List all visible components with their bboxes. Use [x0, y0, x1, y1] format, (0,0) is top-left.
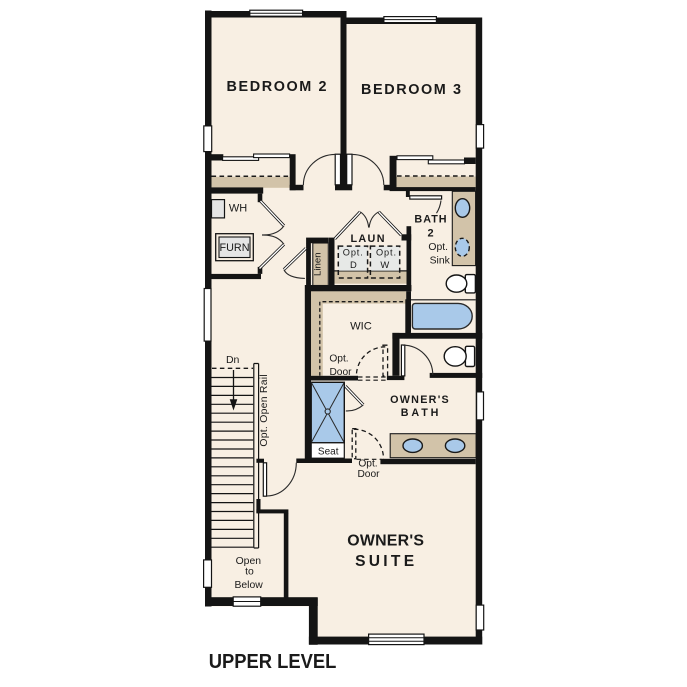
svg-text:Opt.: Opt. [343, 247, 363, 257]
svg-text:Door: Door [329, 367, 352, 378]
svg-text:to: to [245, 567, 254, 578]
svg-text:Dn: Dn [226, 354, 240, 366]
svg-text:SUITE: SUITE [355, 553, 414, 570]
svg-text:Open: Open [236, 556, 262, 567]
svg-text:LAUN: LAUN [351, 233, 385, 245]
svg-text:WIC: WIC [350, 321, 372, 333]
svg-text:Door: Door [357, 469, 380, 480]
svg-text:FURN: FURN [220, 242, 250, 254]
svg-text:WH: WH [229, 202, 247, 214]
svg-text:OWNER'S: OWNER'S [390, 394, 449, 406]
svg-text:W: W [380, 259, 389, 270]
svg-text:Opt. Open Rail: Opt. Open Rail [259, 374, 270, 446]
svg-text:OWNER'S: OWNER'S [347, 533, 424, 550]
svg-text:D: D [350, 259, 357, 270]
svg-text:BATH: BATH [414, 213, 446, 225]
svg-text:Opt.: Opt. [428, 242, 448, 253]
svg-text:2: 2 [427, 227, 433, 239]
svg-text:Sink: Sink [430, 256, 451, 267]
svg-text:UPPER LEVEL: UPPER LEVEL [209, 651, 337, 673]
svg-text:Opt.: Opt. [376, 247, 396, 257]
svg-text:Linen: Linen [313, 252, 324, 275]
svg-text:Opt.: Opt. [329, 353, 348, 364]
svg-text:Opt.: Opt. [358, 458, 377, 469]
svg-text:Below: Below [234, 580, 263, 591]
svg-text:Seat: Seat [318, 446, 339, 457]
